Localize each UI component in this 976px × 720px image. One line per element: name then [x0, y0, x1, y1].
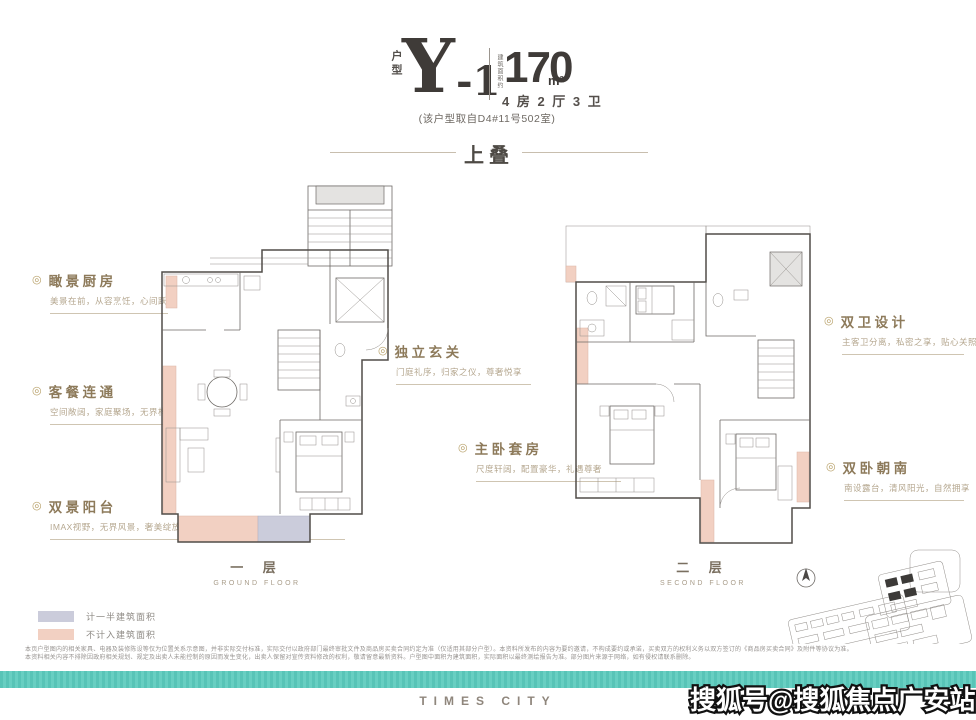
site-plan — [782, 546, 972, 644]
area-unit: m² — [548, 73, 564, 88]
watermark: 搜狐号@搜狐焦点广安站 — [688, 680, 976, 720]
watermark-text: 搜狐号@搜狐焦点广安站 — [690, 685, 975, 715]
not-counted-swatch — [38, 629, 74, 640]
floor-name-cn: 二 层 — [633, 557, 773, 576]
annotation-title: 双景阳台 — [49, 496, 117, 516]
legend-label: 计一半建筑面积 — [86, 610, 156, 623]
disclaimer: 本页户型图内的相关家具、电器及装修陈设等仅为位置关系示意图，并非实际交付标准，实… — [25, 646, 950, 662]
legend-label: 不计入建筑面积 — [86, 628, 156, 641]
annotation-title: 瞰景厨房 — [49, 270, 117, 290]
source-note: (该户型取自D4#11号502室) — [392, 111, 582, 126]
room-layout: 4 房 2 厅 3 卫 — [502, 91, 603, 110]
disclaimer-line: 本资料相关内容不排除因政府相关规划、规定及出卖人未能控制的原因而发生变化，出卖人… — [25, 654, 950, 662]
floorplan-page: 户型 Y -1 建筑面积约 170 m² 4 房 2 厅 3 卫 (该户型取自D… — [0, 0, 976, 720]
annotation-desc: 南设露台，清风阳光，自然拥享 — [844, 482, 970, 494]
floor-label-ground: 一 层 GROUND FLOOR — [187, 557, 327, 587]
annotation-marker-icon: ◎ — [826, 462, 836, 473]
annotation-marker-icon: ◎ — [458, 443, 468, 454]
floor-name-en: SECOND FLOOR — [633, 580, 773, 587]
annotation-title: 双卧朝南 — [843, 457, 911, 477]
legend-item-not-counted: 不计入建筑面积 — [38, 628, 156, 641]
annotation-double-bath: ◎ 双卫设计 主客卫分离，私密之享，贴心关照 — [824, 311, 976, 355]
unit-suffix: -1 — [456, 62, 500, 102]
annotation-underline — [844, 500, 964, 501]
annotation-underline — [396, 384, 531, 385]
annotation-desc: 主客卫分离，私密之享，贴心关照 — [842, 336, 976, 348]
annotation-title: 双卫设计 — [841, 311, 909, 331]
header-divider — [489, 48, 490, 100]
area-prefix: 建筑面积约 — [495, 54, 504, 89]
brand-logo: TIMES CITY — [378, 694, 598, 708]
floor-name-en: GROUND FLOOR — [187, 580, 327, 587]
floor-name-cn: 一 层 — [187, 557, 327, 576]
annotation-underline — [842, 354, 964, 355]
disclaimer-line: 本页户型图内的相关家具、电器及装修陈设等仅为位置关系示意图，并非实际交付标准，实… — [25, 646, 950, 654]
floorplan-second — [560, 220, 815, 546]
annotation-marker-icon: ◎ — [824, 316, 834, 327]
annotation-marker-icon: ◎ — [32, 501, 42, 512]
legend-item-half: 计一半建筑面积 — [38, 610, 156, 623]
annotation-marker-icon: ◎ — [32, 386, 42, 397]
section-line-right — [522, 152, 648, 153]
annotation-title: 独立玄关 — [395, 341, 463, 361]
half-area-swatch — [38, 611, 74, 622]
floorplan-ground — [150, 180, 400, 550]
unit-name: Y — [402, 30, 455, 104]
annotation-marker-icon: ◎ — [32, 275, 42, 286]
annotation-title: 客餐连通 — [49, 381, 117, 401]
annotation-title: 主卧套房 — [475, 438, 543, 458]
annotation-desc: 门庭礼序，归家之仪，尊奢悦享 — [396, 366, 531, 378]
compass-icon — [797, 568, 815, 587]
annotation-south-bedrooms: ◎ 双卧朝南 南设露台，清风阳光，自然拥享 — [826, 457, 970, 501]
section-title: 上叠 — [429, 139, 549, 168]
legend: 计一半建筑面积 不计入建筑面积 — [38, 610, 156, 646]
floor-label-second: 二 层 SECOND FLOOR — [633, 557, 773, 587]
annotation-foyer: ◎ 独立玄关 门庭礼序，归家之仪，尊奢悦享 — [378, 341, 531, 385]
